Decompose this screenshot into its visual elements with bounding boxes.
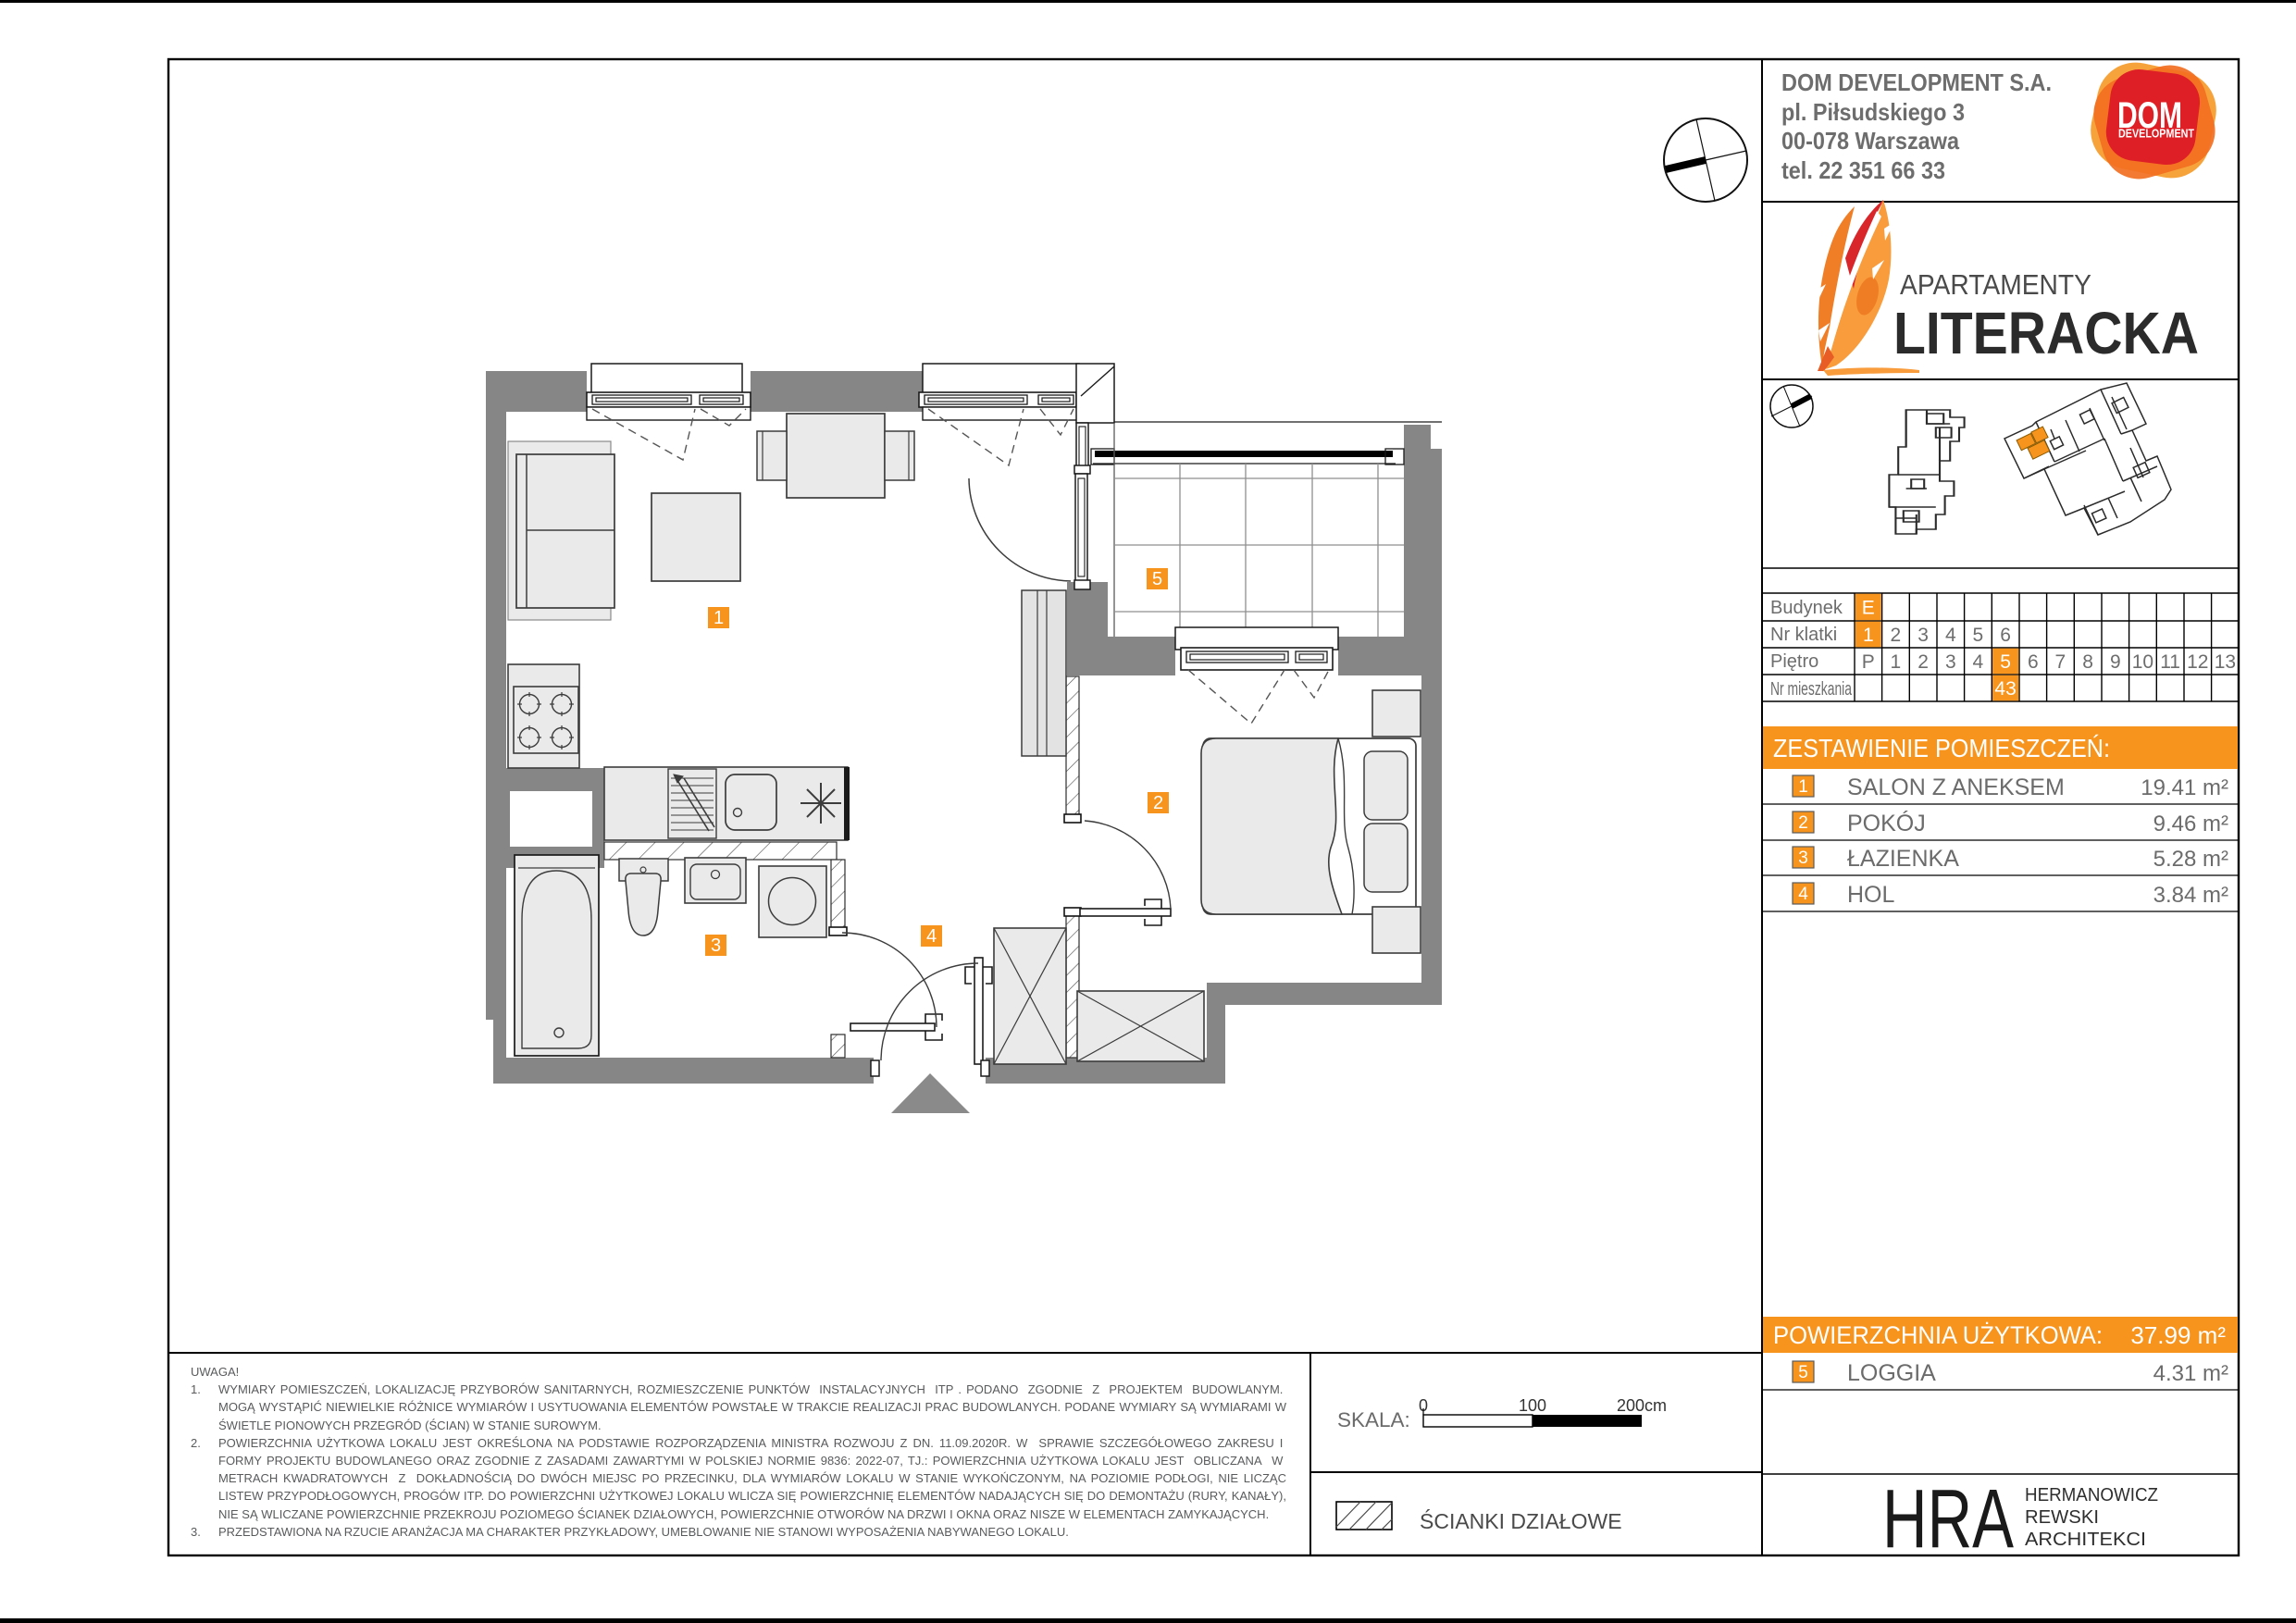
svg-text:3: 3 [1945, 651, 1956, 673]
svg-text:37.99 m²: 37.99 m² [2130, 1321, 2226, 1349]
svg-text:2: 2 [1917, 651, 1929, 673]
svg-text:5: 5 [1798, 1363, 1808, 1382]
svg-text:3: 3 [711, 935, 721, 956]
svg-text:LITERACKA: LITERACKA [1893, 300, 2199, 366]
svg-text:2: 2 [1798, 813, 1808, 833]
svg-text:3: 3 [1917, 625, 1929, 646]
svg-text:200cm: 200cm [1617, 1396, 1667, 1415]
svg-text:1: 1 [714, 608, 724, 628]
svg-text:8: 8 [2082, 651, 2093, 673]
svg-text:4.31 m²: 4.31 m² [2153, 1361, 2228, 1386]
svg-text:SALON Z ANEKSEM: SALON Z ANEKSEM [1847, 774, 2065, 800]
svg-text:POKÓJ: POKÓJ [1847, 810, 1926, 836]
svg-text:DOM DEVELOPMENT S.A.: DOM DEVELOPMENT S.A. [1781, 68, 2052, 96]
svg-text:HRA: HRA [1882, 1473, 2014, 1566]
svg-text:ARCHITEKCI: ARCHITEKCI [2025, 1530, 2146, 1550]
svg-text:Nr mieszkania: Nr mieszkania [1770, 679, 1853, 700]
svg-text:11: 11 [2160, 651, 2180, 673]
svg-text:43: 43 [1994, 678, 2016, 700]
svg-text:00-078 Warszawa: 00-078 Warszawa [1781, 127, 1959, 155]
svg-text:9: 9 [2110, 651, 2121, 673]
svg-text:HERMANOWICZ: HERMANOWICZ [2025, 1485, 2158, 1505]
svg-text:1: 1 [1863, 625, 1874, 646]
svg-text:6: 6 [2028, 651, 2039, 673]
svg-text:SKALA:: SKALA: [1337, 1408, 1410, 1431]
svg-text:12: 12 [2187, 651, 2208, 673]
svg-text:DEVELOPMENT: DEVELOPMENT [2118, 127, 2194, 141]
svg-text:19.41 m²: 19.41 m² [2141, 775, 2228, 800]
svg-text:1: 1 [1891, 651, 1902, 673]
svg-text:5: 5 [1973, 625, 1984, 646]
svg-text:13: 13 [2215, 651, 2236, 673]
svg-text:Budynek: Budynek [1770, 598, 1843, 618]
svg-text:APARTAMENTY: APARTAMENTY [1900, 268, 2091, 301]
svg-text:tel. 22 351 66 33: tel. 22 351 66 33 [1781, 156, 1945, 184]
svg-text:ZESTAWIENIE POMIESZCZEŃ:: ZESTAWIENIE POMIESZCZEŃ: [1773, 734, 2110, 762]
svg-text:E: E [1862, 598, 1875, 619]
svg-text:4: 4 [1973, 651, 1984, 673]
svg-text:10: 10 [2132, 651, 2153, 673]
svg-text:ŚCIANKI DZIAŁOWE: ŚCIANKI DZIAŁOWE [1420, 1508, 1622, 1533]
svg-text:3.84 m²: 3.84 m² [2153, 883, 2228, 908]
svg-text:HOL: HOL [1847, 882, 1895, 908]
svg-text:2: 2 [1153, 793, 1163, 813]
svg-text:5: 5 [1152, 569, 1162, 589]
svg-text:2: 2 [1891, 625, 1902, 646]
svg-text:ŁAZIENKA: ŁAZIENKA [1847, 846, 1959, 872]
svg-text:7: 7 [2055, 651, 2066, 673]
svg-text:POWIERZCHNIA UŻYTKOWA:: POWIERZCHNIA UŻYTKOWA: [1773, 1320, 2103, 1349]
svg-text:5.28 m²: 5.28 m² [2153, 847, 2228, 872]
svg-text:100: 100 [1519, 1396, 1546, 1415]
svg-text:Piętro: Piętro [1770, 651, 1818, 672]
svg-text:4: 4 [1798, 885, 1808, 904]
svg-text:6: 6 [2000, 625, 2011, 646]
svg-text:1: 1 [1798, 777, 1808, 797]
svg-text:P: P [1862, 651, 1875, 673]
svg-text:3: 3 [1798, 849, 1808, 868]
svg-text:5: 5 [2000, 651, 2011, 673]
svg-text:REWSKI: REWSKI [2025, 1507, 2099, 1528]
svg-text:pl. Piłsudskiego 3: pl. Piłsudskiego 3 [1781, 98, 1965, 126]
svg-text:4: 4 [926, 926, 937, 947]
svg-text:4: 4 [1945, 625, 1956, 646]
svg-text:LOGGIA: LOGGIA [1847, 1360, 1936, 1386]
svg-text:9.46 m²: 9.46 m² [2153, 811, 2228, 836]
svg-text:Nr klatki: Nr klatki [1770, 625, 1837, 645]
